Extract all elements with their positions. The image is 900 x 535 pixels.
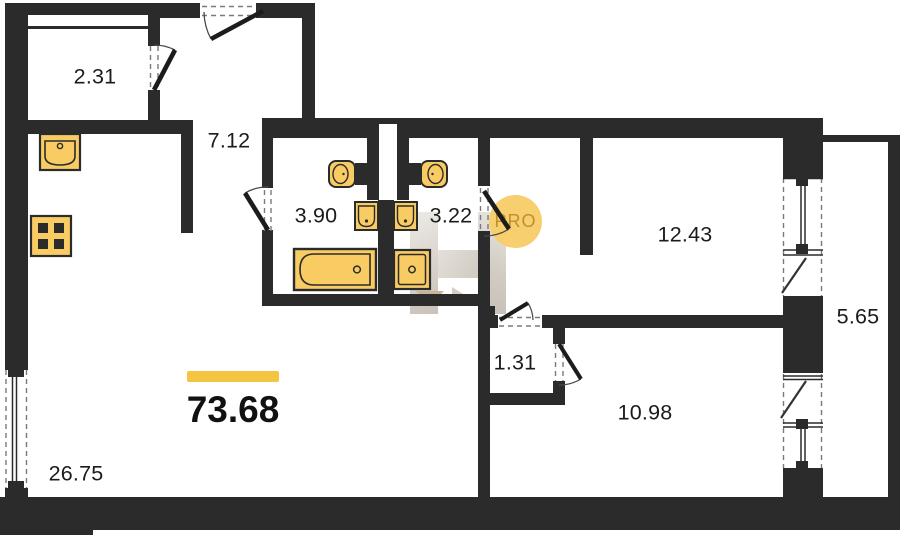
wall — [553, 328, 565, 344]
wall — [478, 231, 490, 306]
toilet-icon — [329, 161, 367, 187]
window-cap — [796, 461, 808, 471]
window-cap — [796, 176, 808, 186]
wall — [160, 3, 200, 18]
wall — [783, 298, 823, 373]
plan-drawing — [0, 0, 900, 535]
window-cap — [8, 368, 24, 377]
floorplan-canvas: PRO — [0, 0, 900, 535]
window-left — [13, 377, 17, 481]
walls — [0, 3, 900, 535]
room-label-vestibule: 1.31 — [494, 351, 537, 376]
window-cap — [796, 244, 808, 254]
kitchen-sink-icon — [40, 128, 80, 170]
door-storage — [154, 45, 175, 90]
stove-icon — [31, 216, 71, 256]
bathtub-icon — [294, 249, 376, 290]
window-cap — [8, 481, 24, 490]
toilet-icon — [409, 161, 447, 187]
total-area-value: 73.68 — [187, 389, 280, 431]
room-label-toilet-room: 3.22 — [430, 204, 473, 229]
room-label-bedroom-2: 10.98 — [618, 401, 673, 426]
wash-basin-icon — [394, 202, 417, 230]
balcony-door-bedroom-2 — [781, 376, 823, 418]
wash-basin-icon — [355, 202, 378, 230]
window-bedroom-1 — [783, 179, 823, 256]
room-label-bedroom-1: 12.43 — [658, 223, 713, 248]
wall — [262, 294, 490, 306]
room-label-hallway: 7.12 — [208, 129, 251, 154]
wall-niche-line — [28, 26, 148, 29]
room-label-storage: 2.31 — [74, 65, 117, 90]
wall — [0, 497, 900, 530]
wall-shaft-left — [367, 138, 379, 200]
wall — [148, 15, 160, 46]
wall — [181, 134, 193, 233]
wall — [5, 120, 193, 134]
wall-shaft-right — [397, 138, 409, 200]
wall — [302, 3, 315, 138]
wall — [262, 118, 823, 138]
wall — [542, 315, 783, 328]
wall — [5, 3, 28, 370]
wall — [5, 3, 160, 15]
room-label-bathroom: 3.90 — [295, 204, 338, 229]
wall — [262, 138, 273, 188]
balcony-door-bedroom-1 — [782, 258, 823, 297]
door-toilet-room — [484, 191, 509, 236]
wall — [783, 138, 823, 178]
room-label-balcony: 5.65 — [837, 305, 880, 330]
wall — [580, 138, 593, 255]
total-area-accent-bar — [187, 371, 279, 382]
wall — [0, 497, 93, 535]
room-label-living-kitchen: 26.75 — [49, 462, 104, 487]
wall — [783, 468, 823, 500]
wall — [478, 393, 565, 405]
vent-shaft-slot — [379, 124, 397, 200]
wall — [488, 315, 498, 328]
wall — [378, 200, 394, 294]
wall — [478, 138, 490, 186]
shower-tray-icon — [394, 250, 430, 289]
wall-balcony-right — [888, 135, 900, 530]
